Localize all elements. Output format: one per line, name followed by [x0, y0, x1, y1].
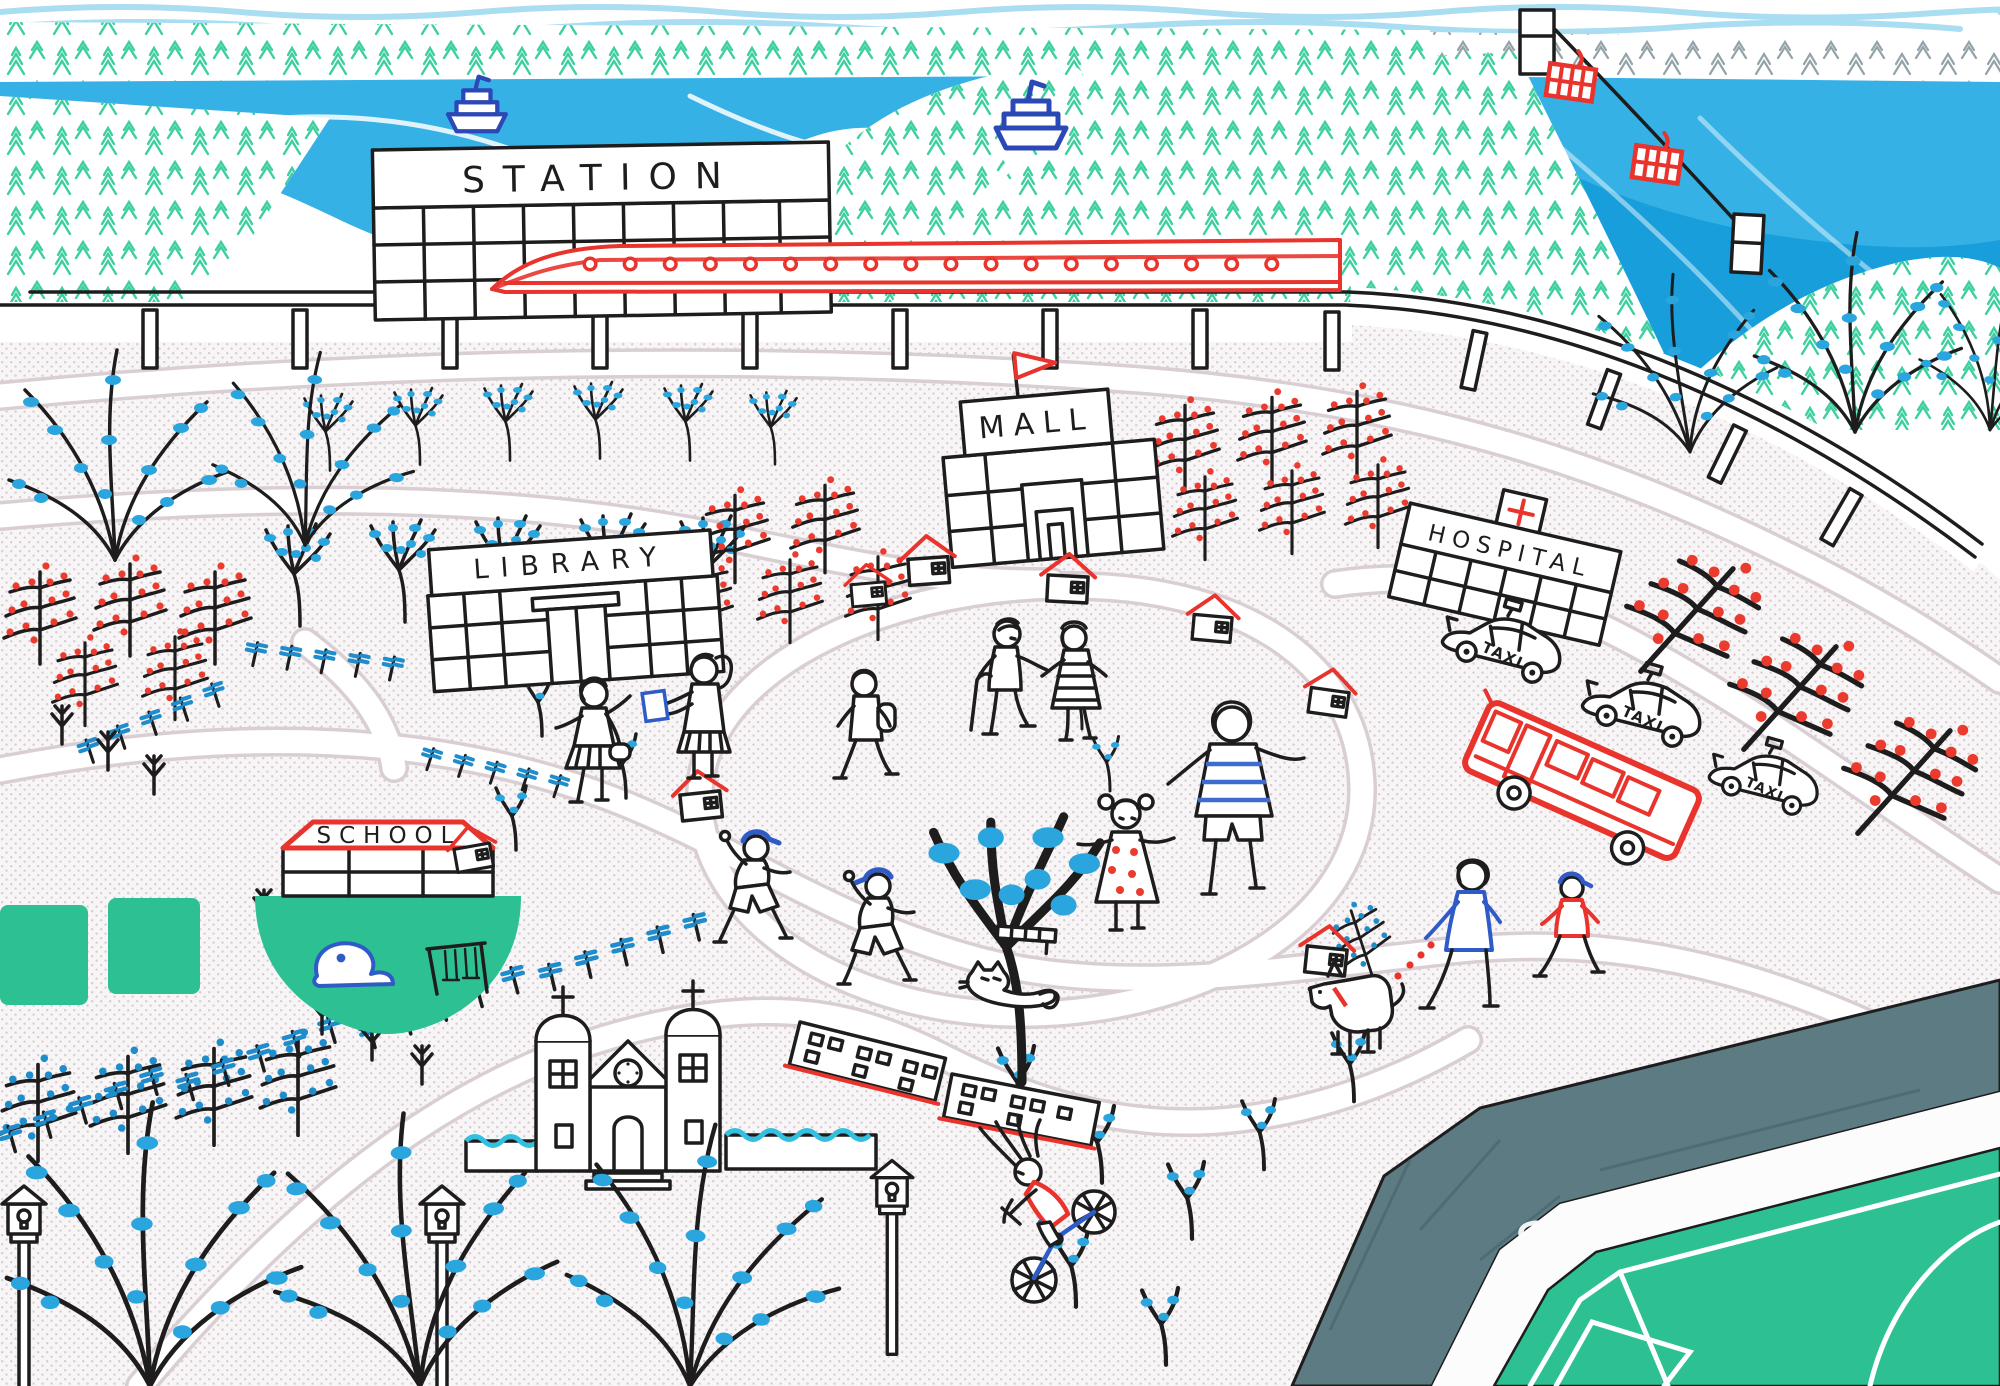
track-pillar — [1325, 312, 1339, 370]
town-map-illustration: TAXI — [0, 0, 2000, 1386]
track-pillar — [1193, 310, 1207, 368]
school-lawn — [0, 905, 88, 1005]
school-lawn — [108, 898, 200, 994]
track-pillar — [743, 310, 757, 368]
track-pillar — [593, 310, 607, 368]
track-pillar — [143, 310, 157, 368]
track-pillar — [893, 310, 907, 368]
map-canvas: TAXI — [0, 0, 2000, 1386]
cable-pylon — [1731, 214, 1764, 273]
school-sign-label: SCHOOL — [317, 823, 462, 849]
library-building: LIBRARY — [425, 530, 724, 692]
train — [492, 240, 1340, 292]
station-sign-label: STATION — [462, 156, 740, 202]
track-pillar — [293, 310, 307, 368]
